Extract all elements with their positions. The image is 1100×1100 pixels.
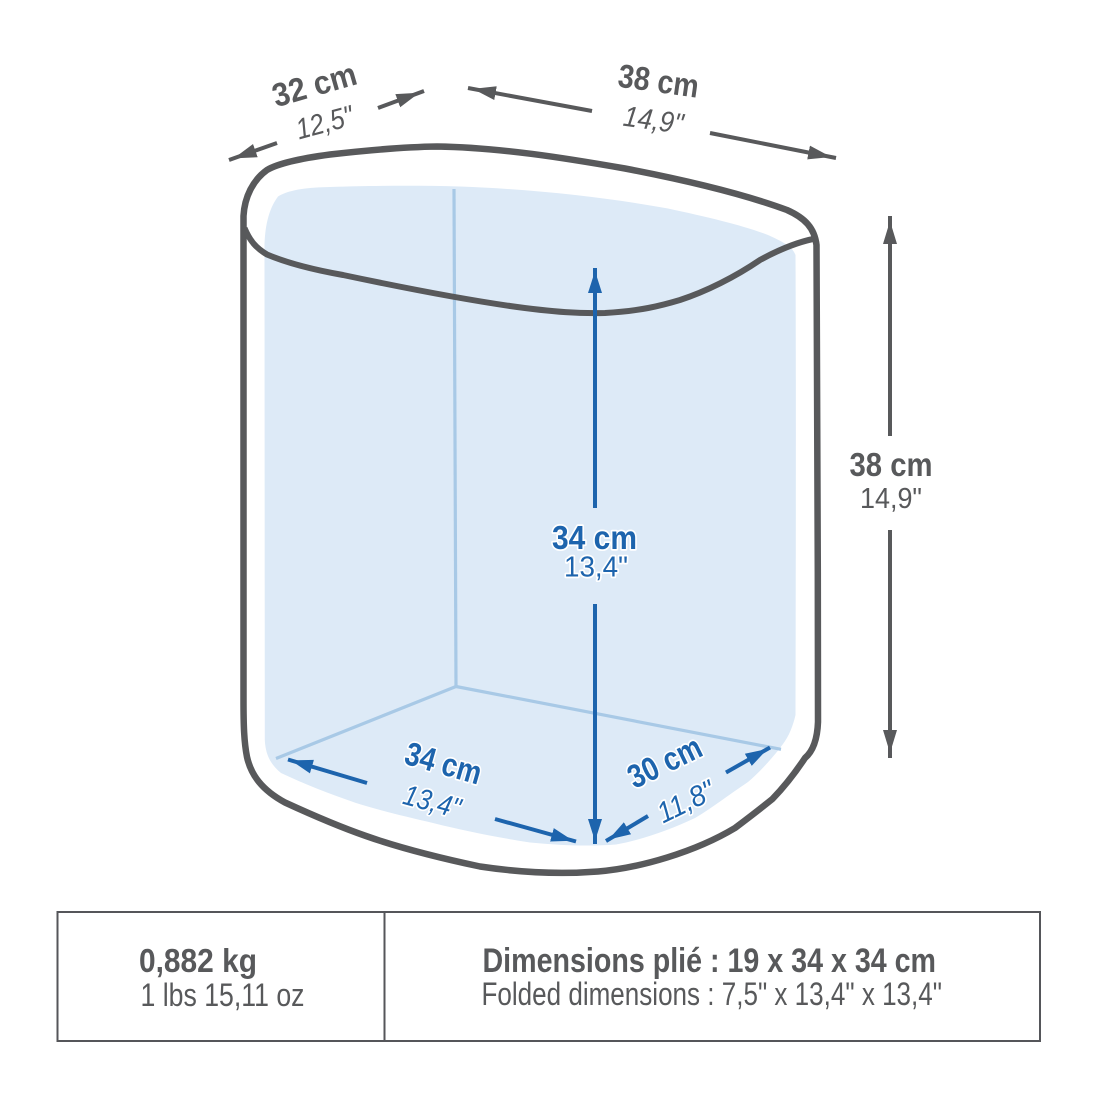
svg-text:34 cm: 34 cm bbox=[552, 519, 637, 556]
svg-text:0,882 kg: 0,882 kg bbox=[139, 942, 257, 979]
svg-text:1 lbs 15,11 oz: 1 lbs 15,11 oz bbox=[141, 977, 305, 1013]
svg-text:Dimensions plié : 19 x 34 x 34: Dimensions plié : 19 x 34 x 34 cm bbox=[483, 942, 937, 980]
svg-text:14,9": 14,9" bbox=[860, 483, 922, 515]
svg-text:Folded dimensions : 7,5" x 13,: Folded dimensions : 7,5" x 13,4" x 13,4" bbox=[482, 976, 943, 1012]
svg-text:13,4": 13,4" bbox=[564, 552, 628, 584]
svg-text:38 cm: 38 cm bbox=[850, 446, 933, 483]
